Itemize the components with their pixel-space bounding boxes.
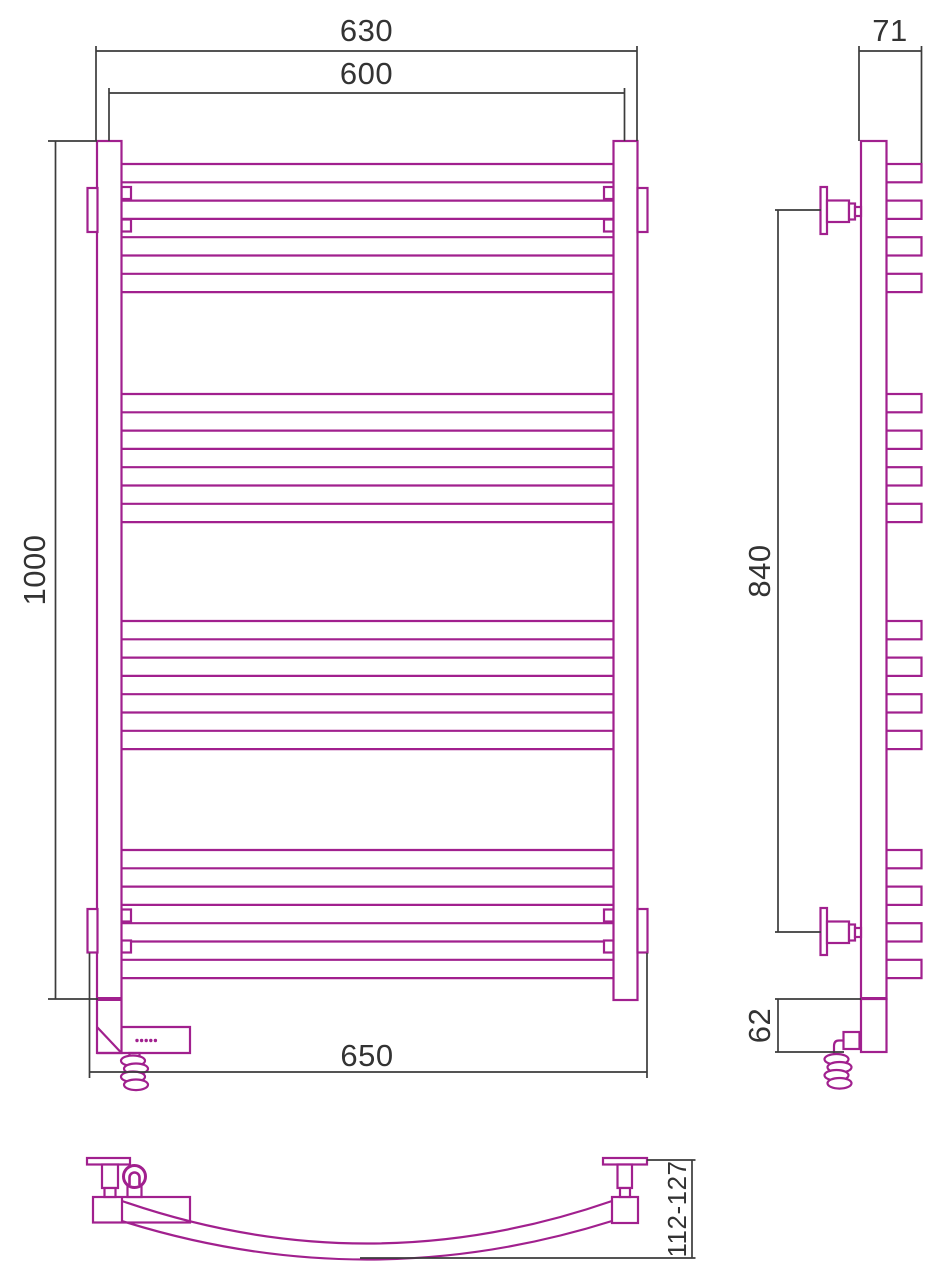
dim-label-630: 630 xyxy=(340,13,393,48)
tube-stub xyxy=(886,887,922,905)
left-post xyxy=(97,141,122,1053)
wall-bracket xyxy=(638,188,648,232)
post-inner-hooks xyxy=(122,187,614,953)
hook xyxy=(604,941,614,953)
cable-coil-loop xyxy=(828,1078,852,1089)
dim-label-840: 840 xyxy=(742,544,777,597)
dimension-bracket-spacing: 840 xyxy=(742,210,821,932)
led-dot xyxy=(154,1039,157,1042)
dim-label-650: 650 xyxy=(340,1038,393,1073)
front-tube-groups xyxy=(122,164,614,978)
hook xyxy=(122,187,132,199)
dim-label-600: 600 xyxy=(340,56,393,91)
tube-stub xyxy=(886,394,922,412)
wall-brackets-front xyxy=(88,188,648,953)
bracket-arm xyxy=(827,922,849,944)
wall-bracket xyxy=(88,188,98,232)
bracket-arm xyxy=(827,201,849,223)
dim-label-71: 71 xyxy=(872,13,907,48)
plan-left-housing xyxy=(93,1197,190,1223)
wall-bracket xyxy=(88,909,98,953)
right-post xyxy=(614,141,638,1000)
tube-stub xyxy=(886,923,922,941)
front-view: 630 600 1000 650 xyxy=(17,13,648,1090)
bracket-foot xyxy=(620,1188,630,1197)
dim-label-62: 62 xyxy=(742,1008,777,1043)
cable-coil-loop xyxy=(124,1080,148,1091)
plan-right-endcap xyxy=(612,1197,638,1223)
power-cable-side xyxy=(825,1032,860,1089)
plan-left-bracket xyxy=(87,1158,146,1197)
tube-stub xyxy=(886,731,922,749)
side-post xyxy=(861,141,887,999)
tube-stub xyxy=(886,960,922,978)
bracket-tip xyxy=(855,928,861,937)
tube-stub xyxy=(886,467,922,485)
dimension-mounting-width: 600 xyxy=(109,56,625,141)
hook xyxy=(604,220,614,232)
plan-right-bracket xyxy=(603,1158,647,1197)
bracket-foot xyxy=(105,1188,116,1197)
tube-stub xyxy=(886,237,922,255)
hook xyxy=(122,220,132,232)
led-dot xyxy=(135,1039,138,1042)
led-dot xyxy=(149,1039,152,1042)
tube-stub xyxy=(886,694,922,712)
hook xyxy=(604,187,614,199)
side-tube-stubs xyxy=(886,164,922,978)
tube-stub xyxy=(886,658,922,676)
dim-label-1000: 1000 xyxy=(17,535,52,606)
technical-drawing: 630 600 1000 650 xyxy=(0,0,942,1280)
wall-bracket xyxy=(638,909,648,953)
bottom-plan-view: 112-127 xyxy=(87,1158,696,1260)
bracket-stem xyxy=(102,1165,118,1189)
cable-elbow-box xyxy=(844,1032,860,1049)
tube-stub xyxy=(886,274,922,292)
tube-stub xyxy=(886,504,922,522)
cable-gland-ring xyxy=(124,1166,146,1188)
tube-stub xyxy=(886,431,922,449)
tube-stub xyxy=(886,621,922,639)
hook xyxy=(122,941,132,953)
dimension-overall-height: 1000 xyxy=(17,141,98,999)
dimension-bracket-span: 650 xyxy=(90,953,648,1078)
hook xyxy=(604,910,614,922)
dim-label-112-127: 112-127 xyxy=(662,1161,692,1258)
led-dot xyxy=(140,1039,143,1042)
side-element-box xyxy=(861,999,887,1052)
led-indicators xyxy=(135,1039,157,1042)
side-view: 71 840 62 xyxy=(742,13,922,1089)
wall-bracket-side-top xyxy=(821,187,862,234)
wall-bracket-side-bottom xyxy=(821,908,862,955)
hook xyxy=(122,910,132,922)
tube-stub xyxy=(886,164,922,182)
bracket-tip xyxy=(855,207,861,216)
plan-arc-tube xyxy=(122,1201,612,1260)
tube-stub xyxy=(886,201,922,219)
tube-stub xyxy=(886,850,922,868)
power-cable-coil-side xyxy=(825,1054,852,1089)
bracket-stem xyxy=(618,1165,633,1189)
led-dot xyxy=(145,1039,148,1042)
